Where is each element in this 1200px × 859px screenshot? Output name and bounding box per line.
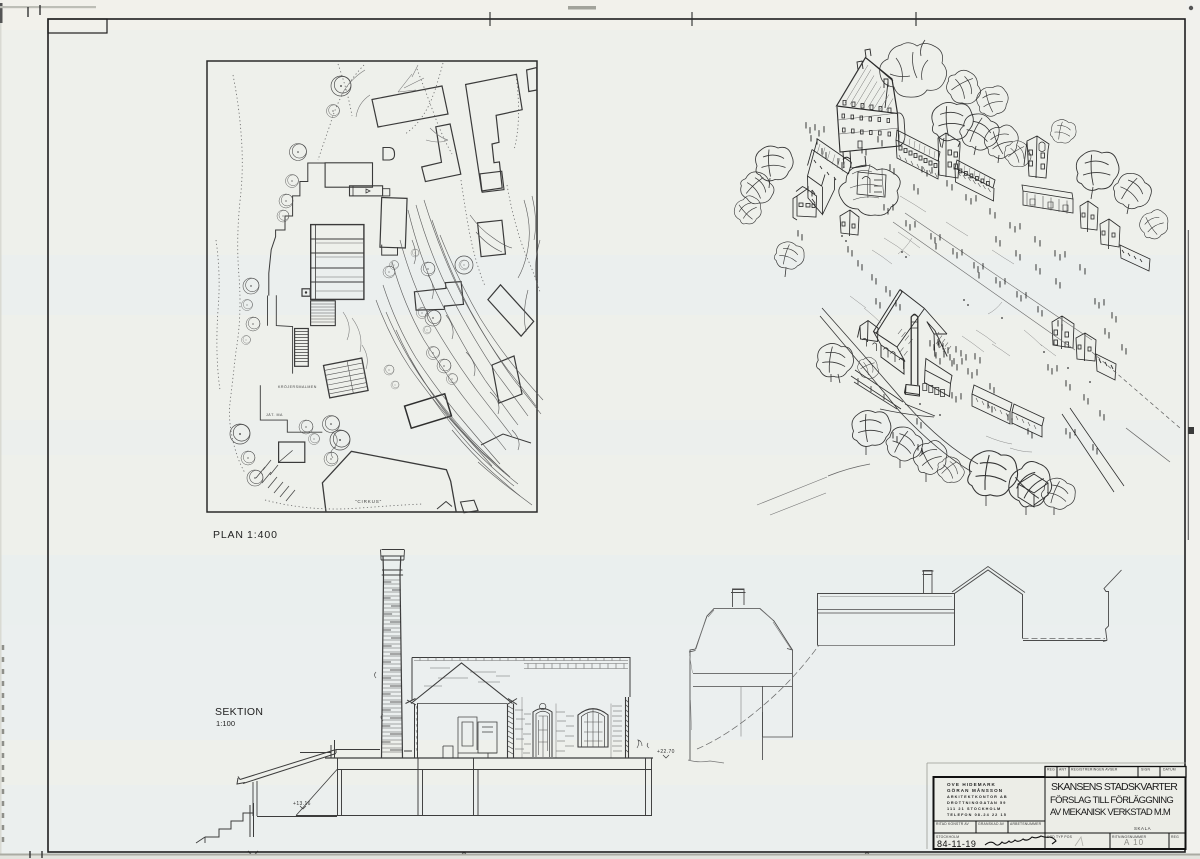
svg-text:+22.70: +22.70 [657,749,675,755]
svg-text:GRANSKAD AV: GRANSKAD AV [978,822,1005,826]
svg-text:SIGN: SIGN [1141,768,1150,772]
svg-text:GÖRAN MÅNSSON: GÖRAN MÅNSSON [947,787,1003,793]
svg-text:RITAD KONSTR AV: RITAD KONSTR AV [936,822,970,826]
svg-text:+13.16: +13.16 [293,801,311,807]
svg-text:REGISTRERINGEN AVSER: REGISTRERINGEN AVSER [1071,768,1118,772]
svg-text:111 21 STOCKHOLM: 111 21 STOCKHOLM [947,807,1001,811]
svg-text:ARKITEKTKONTOR AB: ARKITEKTKONTOR AB [947,795,1008,799]
svg-text:FÖRSLAG TILL FÖRLÄGGNING: FÖRSLAG TILL FÖRLÄGGNING [1050,795,1175,806]
svg-text:SKANSENS STADSKVARTER: SKANSENS STADSKVARTER [1051,781,1179,793]
svg-text:ANT: ANT [1059,768,1066,772]
svg-text:REG: REG [1047,768,1055,772]
svg-text:JÄT. MA: JÄT. MA [266,413,283,417]
svg-text:84-11-19: 84-11-19 [937,839,976,849]
svg-text:REG: REG [1171,835,1179,839]
svg-text:SEKTION: SEKTION [215,706,263,718]
svg-text:1:100: 1:100 [216,719,235,728]
svg-text:DATUM: DATUM [1163,768,1176,772]
svg-text:A 10: A 10 [1124,838,1144,847]
svg-text:DROTTNINGGATAN 59: DROTTNINGGATAN 59 [947,801,1006,805]
svg-text:KRÖJERSMALMEN: KRÖJERSMALMEN [278,385,317,389]
svg-text:PLAN: PLAN [213,529,243,541]
svg-text:TELEFON 08-24 22 15: TELEFON 08-24 22 15 [947,813,1007,817]
svg-text:AV MEKANISK VERKSTAD M.M: AV MEKANISK VERKSTAD M.M [1050,807,1172,818]
svg-text:"CIRKUS": "CIRKUS" [355,499,382,504]
svg-text:SKALA: SKALA [1134,826,1151,831]
svg-text:ARBETSNUMMER: ARBETSNUMMER [1010,822,1042,826]
svg-text:OVE HIDEMARK: OVE HIDEMARK [947,782,996,787]
svg-text:1:400: 1:400 [247,529,277,541]
